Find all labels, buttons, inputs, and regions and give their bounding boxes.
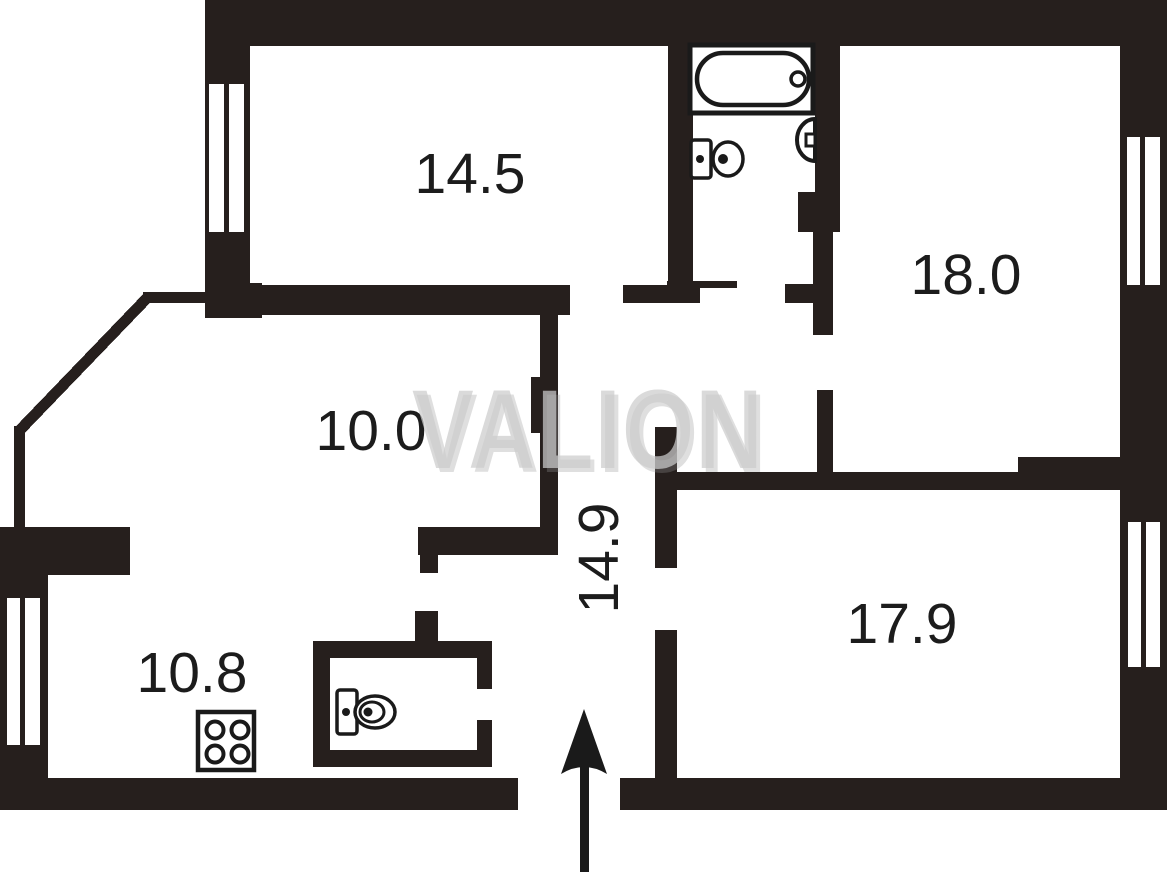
wall-room18-door-jamb — [813, 303, 833, 335]
wall-wc-top — [313, 641, 492, 658]
room-area-label-rotated: 14.9 — [567, 503, 631, 614]
room-area-label: 18.0 — [911, 243, 1022, 307]
watermark: VALION VALION — [412, 367, 768, 496]
wall-kitchen-top — [0, 527, 130, 575]
wall-wc-left — [313, 641, 330, 767]
window-kitchen — [7, 598, 40, 745]
wall-room145-bottom — [205, 285, 570, 315]
window-room18 — [1127, 137, 1160, 285]
wall-hall-top-right — [785, 284, 833, 303]
window-room145 — [209, 84, 244, 232]
stove-icon — [198, 712, 254, 770]
wall-wc-right-lower — [477, 720, 492, 767]
wall-thin-horizontal — [143, 292, 207, 303]
floor-plan-canvas: 14.5 18.0 10.0 17.9 10.8 14.9 VALION VAL… — [0, 0, 1167, 872]
wall-room18-left-lower — [817, 390, 833, 474]
toilet-icon — [691, 140, 743, 178]
wall-room100-bottom — [418, 527, 558, 555]
wall-bathroom-right-upper — [815, 46, 840, 196]
watermark-label: VALION — [412, 367, 764, 492]
wall-bathroom-door-threshold — [667, 281, 737, 288]
wall-wc-right-upper — [477, 641, 492, 689]
window-divider — [1140, 137, 1145, 285]
wall-stub-b — [415, 611, 438, 643]
wall-bottom-right — [620, 778, 1167, 810]
window-divider — [20, 598, 25, 745]
window-room179 — [1128, 522, 1160, 667]
bathtub-icon — [690, 45, 813, 113]
wall-bottom-left — [0, 778, 518, 810]
room-area-label: 10.8 — [137, 641, 248, 705]
window-divider — [224, 84, 229, 232]
wall-thin-vertical — [14, 426, 25, 527]
wall-top — [205, 0, 1167, 46]
sink-icon — [797, 119, 815, 161]
room-area-label: 10.0 — [316, 399, 427, 463]
wall-room179-left-lower — [655, 630, 677, 778]
room-area-label: 17.9 — [847, 592, 958, 656]
arrow-shaft — [580, 755, 589, 872]
floor-plan: 14.5 18.0 10.0 17.9 10.8 14.9 VALION VAL… — [0, 0, 1167, 872]
wall-bathroom-right-block — [798, 192, 840, 232]
room-area-label: 14.5 — [415, 142, 526, 206]
wall-wc-bottom — [313, 750, 492, 767]
window-divider — [1141, 522, 1146, 667]
wall-room18-bottom-thick — [1018, 457, 1120, 488]
wall-stub-a — [420, 555, 438, 573]
